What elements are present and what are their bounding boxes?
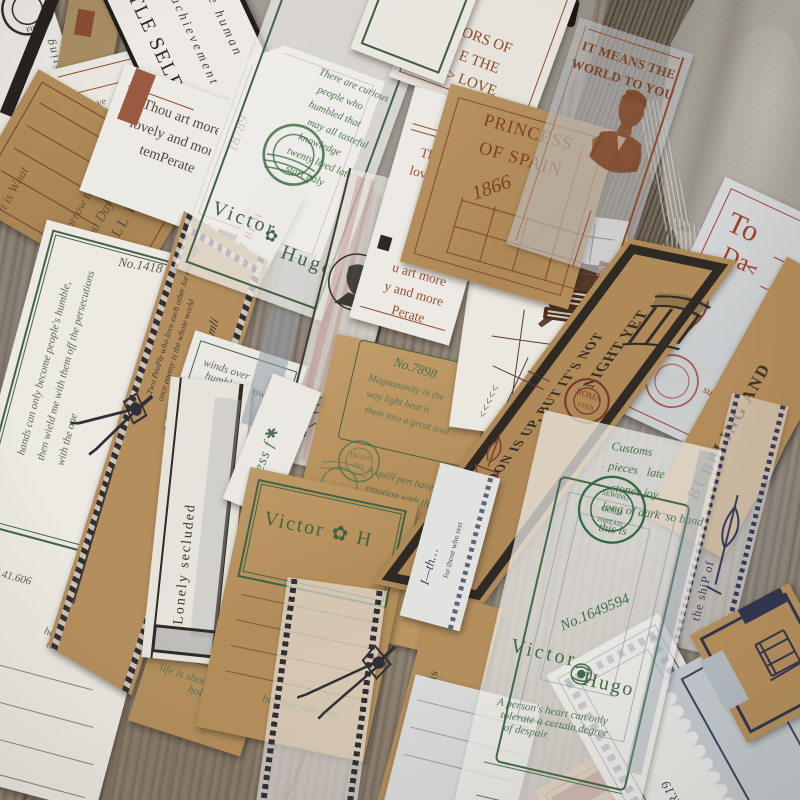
svg-text:1927: 1927 <box>352 462 364 470</box>
svg-text:SEWING: SEWING <box>601 489 629 503</box>
svg-text:VINTAGE: VINTAGE <box>6 0 38 1</box>
svg-text:GOLD: GOLD <box>600 504 624 518</box>
